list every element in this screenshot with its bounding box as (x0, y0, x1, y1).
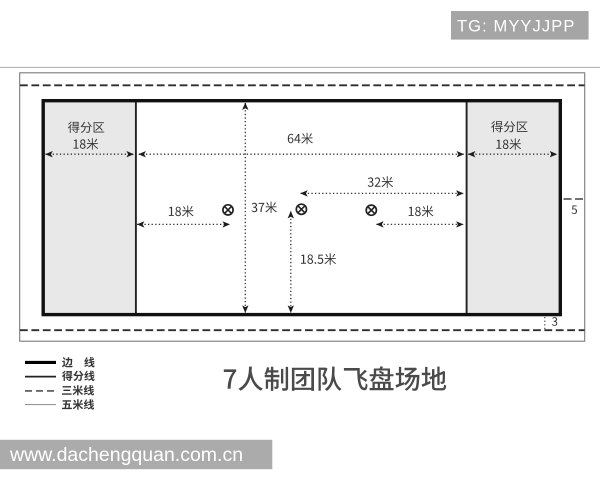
svg-text:TG: MYYJJPP: TG: MYYJJPP (457, 18, 575, 36)
svg-text:www.dachengquan.com.cn: www.dachengquan.com.cn (9, 444, 243, 466)
